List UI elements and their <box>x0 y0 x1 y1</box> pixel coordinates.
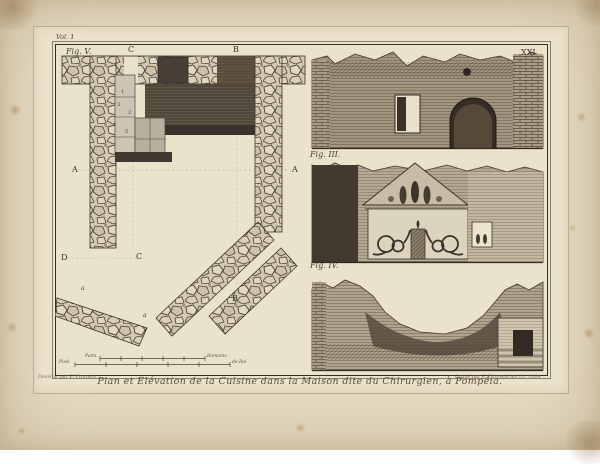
elevation-top-brick-pier-left <box>312 60 330 148</box>
plan-wall-left <box>90 56 116 248</box>
plan-letter-a-left: A <box>72 165 78 174</box>
corner-stain <box>572 0 600 26</box>
plan-number-3: 3 <box>117 102 120 108</box>
foxing-spot <box>295 423 306 433</box>
scanned-plate-page: Vol. 1 XXI Fig. V. Fig. III. Fig. IV. C … <box>0 0 600 450</box>
foxing-spot <box>576 112 587 122</box>
plan-letter-c-mid: C <box>136 252 142 261</box>
elevation-fig3 <box>312 163 543 263</box>
engraving <box>55 44 546 374</box>
scale-feet-right-label: de Roi <box>232 360 247 365</box>
foxing-spot <box>17 427 26 435</box>
foxing-spot <box>8 104 22 116</box>
plan-letter-b-top: B <box>233 45 239 54</box>
plan-letter-b-low: B <box>232 294 238 303</box>
plan-letter-a-small-1: a <box>81 285 85 292</box>
plan-wall-right <box>255 56 282 232</box>
elevation-top-round-hole <box>463 68 471 76</box>
credit-left: Dessiné par F. Piranesi <box>38 374 96 380</box>
elevation-fig4-brick-edge <box>312 282 326 370</box>
fig-iii-label: Fig. III. <box>310 150 340 159</box>
scale-palms-left-label: Palm. <box>85 354 98 359</box>
plan-wall-diagonal-left <box>55 298 147 346</box>
scale-feet-left-label: Pied. <box>59 360 70 365</box>
volume-label: Vol. 1 <box>56 33 74 41</box>
plan-number-1: 1 <box>121 89 124 95</box>
fig-iv-label: Fig. IV. <box>310 261 338 270</box>
foxing-spot <box>583 328 595 339</box>
elevation-fig3-serpent-panel <box>368 209 468 259</box>
plan-number-5: 5 <box>125 129 128 135</box>
credit-right: Gravé par F. Piranesi An 13. 1804 <box>455 374 541 380</box>
scale-palms-right-label: Romains <box>207 354 227 359</box>
elevation-top-brick-pier-right <box>513 54 543 148</box>
foxing-spot <box>6 322 18 333</box>
plan-letter-a-right: A <box>292 165 298 174</box>
plan-drawing <box>55 56 305 367</box>
elevation-top <box>312 52 543 149</box>
elevation-fig4 <box>312 280 543 371</box>
plate-number: XXI <box>521 48 536 57</box>
plan-letter-a-small-2: a <box>143 312 147 319</box>
fig-v-label: Fig. V. <box>66 47 91 56</box>
plate-caption: Plan et Élévation de la Cuisine dans la … <box>90 376 510 387</box>
niche <box>472 222 492 247</box>
plan-letter-c-top: C <box>128 45 134 54</box>
plan-number-2: 2 <box>128 110 131 116</box>
plan-letter-d-mid: D <box>61 253 67 262</box>
elevation-fig4-stair-structure <box>498 318 543 367</box>
corner-stain <box>562 420 600 464</box>
foxing-spot <box>568 224 576 232</box>
elevation-fig3-right-wall <box>468 172 543 262</box>
plan-number-4: 4 <box>113 122 116 128</box>
